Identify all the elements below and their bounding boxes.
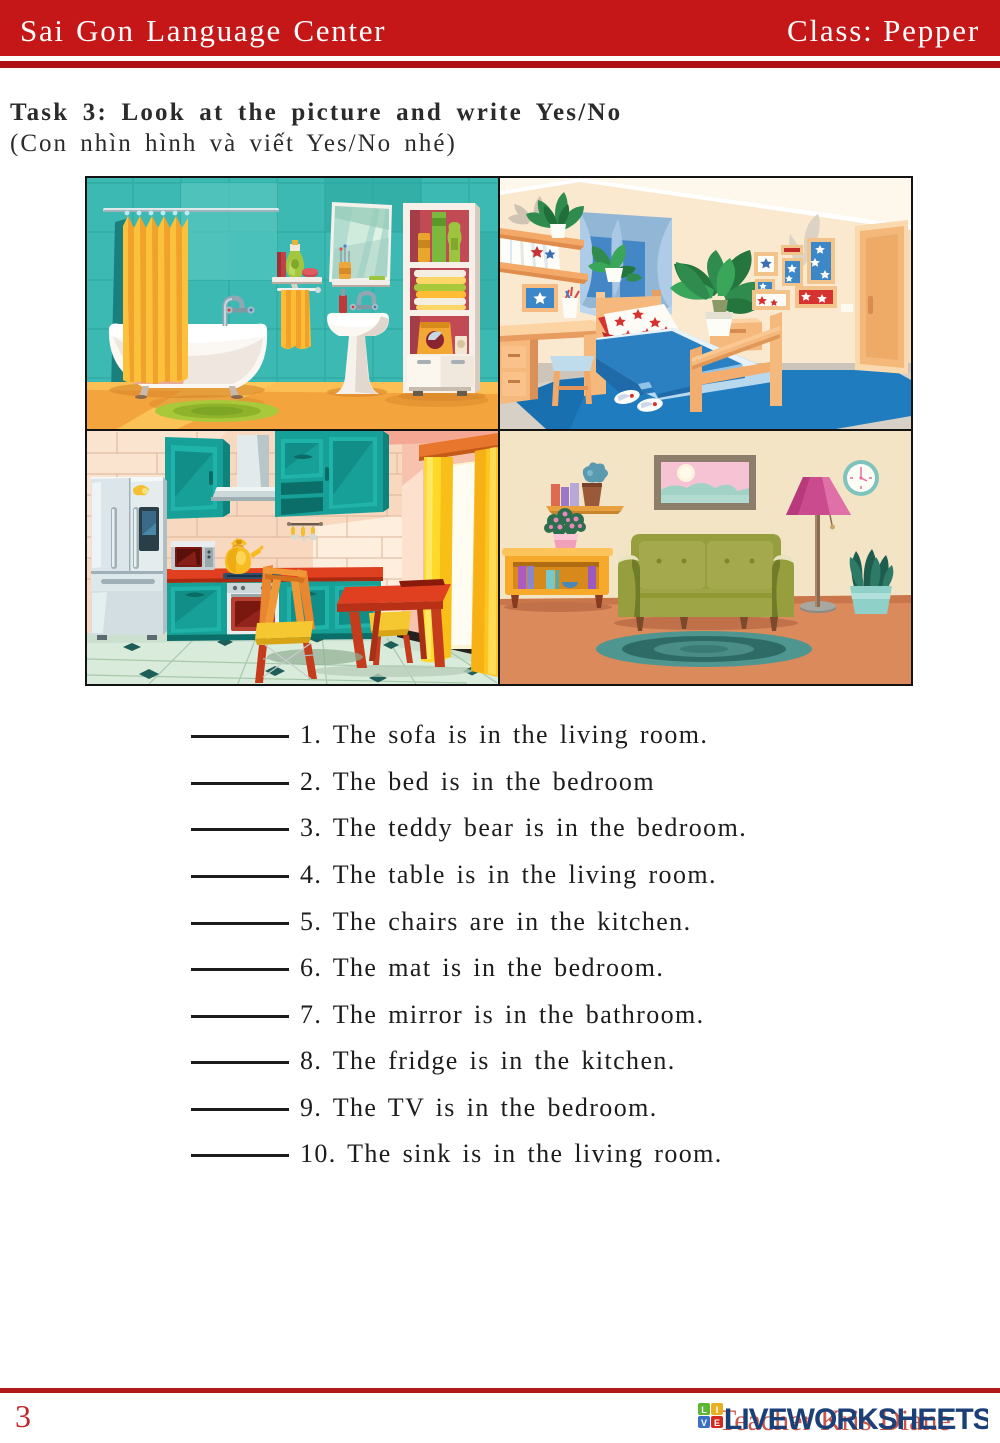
svg-text:E: E [714, 1418, 720, 1428]
svg-text:I: I [716, 1405, 719, 1415]
svg-text:LIVEWORKSHEETS: LIVEWORKSHEETS [724, 1403, 988, 1436]
svg-text:L: L [701, 1405, 707, 1415]
svg-text:V: V [701, 1418, 707, 1428]
